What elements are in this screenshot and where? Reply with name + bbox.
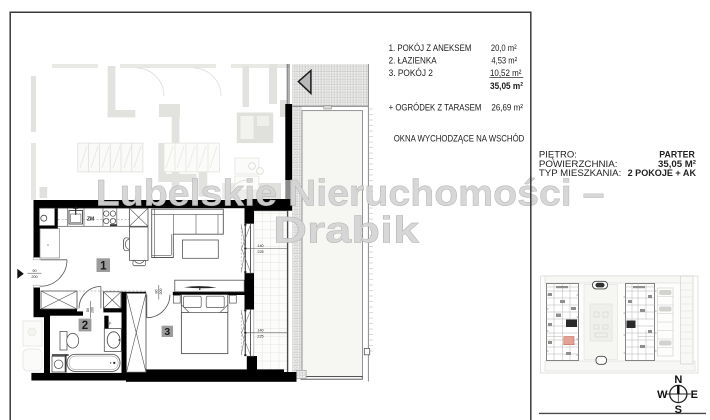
svg-text:Drabik: Drabik (273, 210, 419, 251)
svg-text:80: 80 (86, 308, 90, 312)
svg-text:4,53 m²: 4,53 m² (491, 56, 517, 67)
svg-text:N: N (674, 374, 682, 386)
svg-text:1: 1 (100, 260, 107, 272)
svg-text:26,69 m²: 26,69 m² (491, 103, 523, 114)
svg-text:20,0 m²: 20,0 m² (491, 43, 517, 54)
svg-text:140: 140 (257, 329, 263, 333)
svg-text:TYP MIESZKANIA:: TYP MIESZKANIA: (539, 168, 621, 179)
svg-text:225: 225 (257, 250, 263, 254)
svg-text:+ OGRÓDEK Z TARASEM: + OGRÓDEK Z TARASEM (389, 103, 482, 114)
svg-text:225: 225 (257, 335, 263, 339)
svg-text:ZM: ZM (87, 217, 94, 223)
svg-text:35,05 m²: 35,05 m² (490, 81, 523, 92)
svg-text:u: u (47, 243, 49, 247)
svg-text:S: S (675, 404, 682, 416)
svg-text:1. POKÓJ Z ANEKSEM: 1. POKÓJ Z ANEKSEM (389, 43, 472, 54)
svg-text:80: 80 (155, 290, 159, 294)
svg-text:OKNA WYCHODZĄCE NA WSCHÓD: OKNA WYCHODZĄCE NA WSCHÓD (394, 134, 525, 145)
svg-text:140: 140 (257, 244, 263, 248)
svg-text:2 POKOJE + AK: 2 POKOJE + AK (628, 168, 696, 179)
svg-text:p.: p. (109, 321, 112, 325)
svg-text:200: 200 (91, 307, 95, 313)
svg-text:2: 2 (82, 320, 88, 332)
svg-text:200: 200 (159, 289, 163, 295)
svg-text:10,52 m²: 10,52 m² (490, 68, 522, 79)
svg-text:Lubelskie Nieruchomości –: Lubelskie Nieruchomości – (96, 173, 605, 214)
svg-text:3: 3 (164, 326, 170, 338)
svg-text:3. POKÓJ 2: 3. POKÓJ 2 (389, 68, 433, 79)
svg-text:E: E (691, 389, 698, 401)
svg-text:90: 90 (32, 269, 36, 273)
svg-text:2. ŁAZIENKA: 2. ŁAZIENKA (389, 56, 437, 67)
svg-text:200: 200 (31, 275, 37, 279)
svg-text:W: W (657, 389, 668, 401)
